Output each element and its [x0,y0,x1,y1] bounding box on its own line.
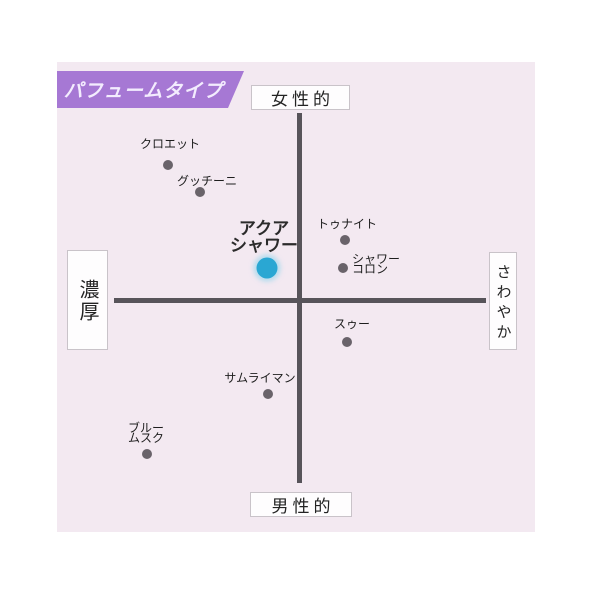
axis-label-rich: 濃厚 [67,250,108,350]
data-point-label: スゥー [334,319,370,329]
perfume-map-panel [57,62,535,532]
data-point-label: シャワーコロン [352,254,400,274]
data-point-label: クロエット [140,139,200,149]
axis-label-masculine: 男性的 [250,492,352,517]
data-point [263,389,273,399]
highlighted-data-point [257,258,278,279]
data-point [340,235,350,245]
chart-title: パフュームタイプ [57,76,244,103]
x-axis-line [114,298,486,303]
data-point [195,187,205,197]
data-point [163,160,173,170]
data-point [338,263,348,273]
data-point-label: アクアシャワー [230,220,298,254]
axis-label-feminine: 女性的 [251,85,350,110]
data-point [342,337,352,347]
data-point [142,449,152,459]
data-point-label: サムライマン [224,373,295,383]
data-point-label: グッチーニ [177,176,237,186]
axis-label-fresh: さわやか [489,252,517,350]
perfume-map: パフュームタイプ 女性的 男性的 濃厚 さわやか クロエットグッチーニアクアシャ… [0,0,600,600]
data-point-label: ブルームスク [128,423,164,443]
title-ribbon: パフュームタイプ [57,71,244,108]
data-point-label: トゥナイト [317,219,377,229]
